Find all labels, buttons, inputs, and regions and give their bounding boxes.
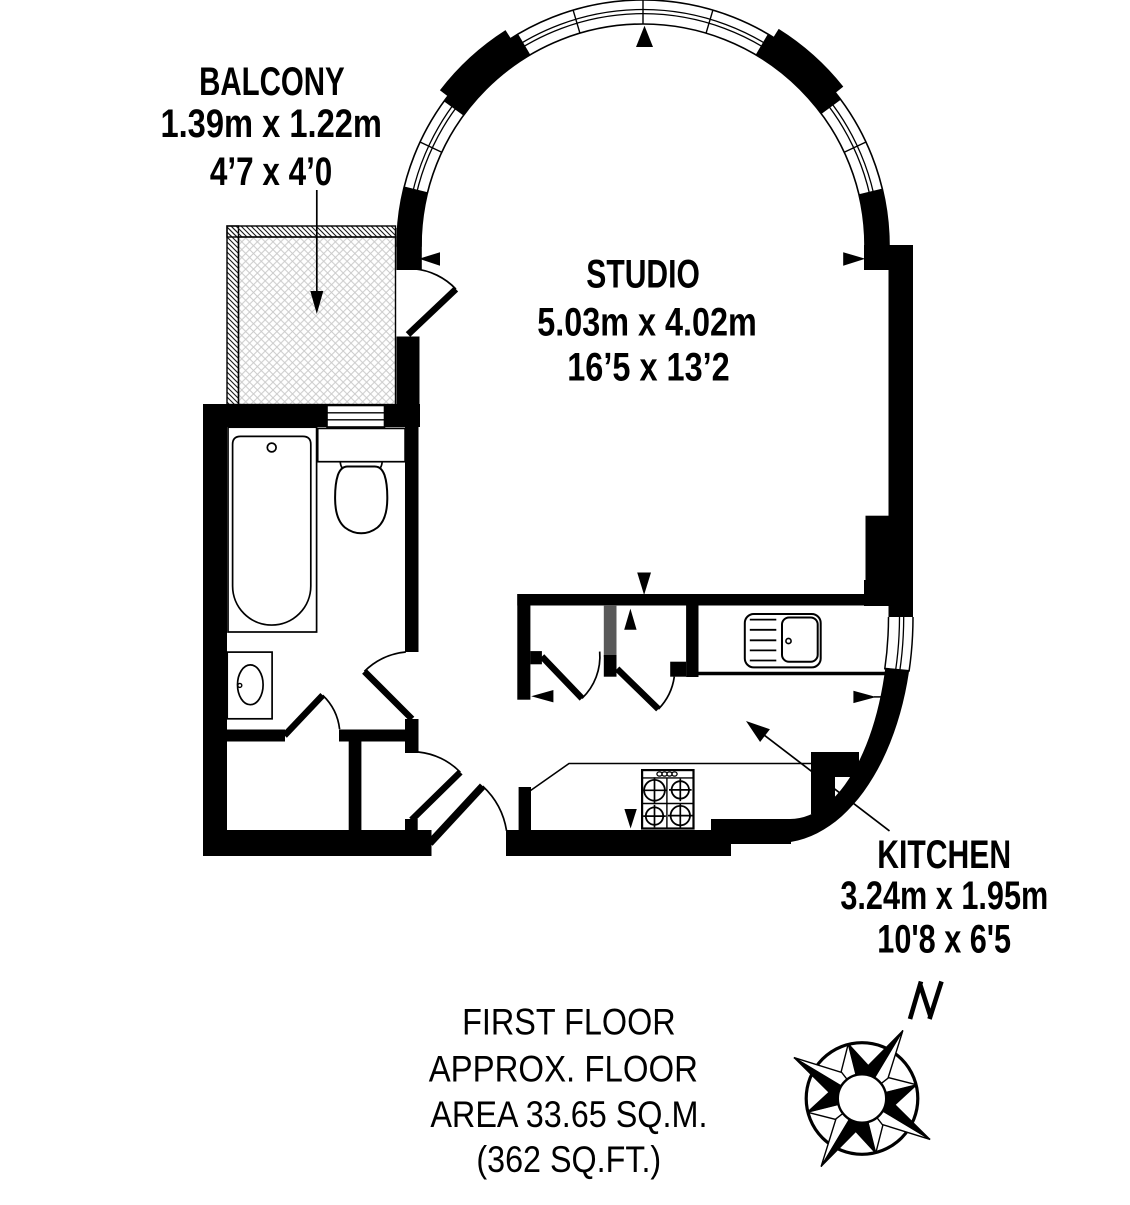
svg-text:BALCONY: BALCONY [199, 60, 345, 104]
svg-text:4’7 x 4’0: 4’7 x 4’0 [210, 150, 332, 194]
svg-text:(362 SQ.FT.): (362 SQ.FT.) [476, 1139, 661, 1180]
svg-text:AREA 33.65 SQ.M.: AREA 33.65 SQ.M. [430, 1094, 707, 1135]
svg-text:3.24m x 1.95m: 3.24m x 1.95m [840, 874, 1048, 918]
svg-text:FIRST FLOOR: FIRST FLOOR [462, 1002, 676, 1043]
svg-text:STUDIO: STUDIO [586, 253, 700, 297]
svg-text:5.03m x 4.02m: 5.03m x 4.02m [537, 301, 757, 345]
svg-text:1.39m x 1.22m: 1.39m x 1.22m [160, 102, 382, 146]
svg-text:16’5 x 13’2: 16’5 x 13’2 [567, 346, 730, 390]
svg-text:10'8 x 6'5: 10'8 x 6'5 [877, 918, 1011, 962]
svg-text:KITCHEN: KITCHEN [877, 833, 1011, 877]
svg-text:APPROX. FLOOR: APPROX. FLOOR [429, 1049, 698, 1090]
